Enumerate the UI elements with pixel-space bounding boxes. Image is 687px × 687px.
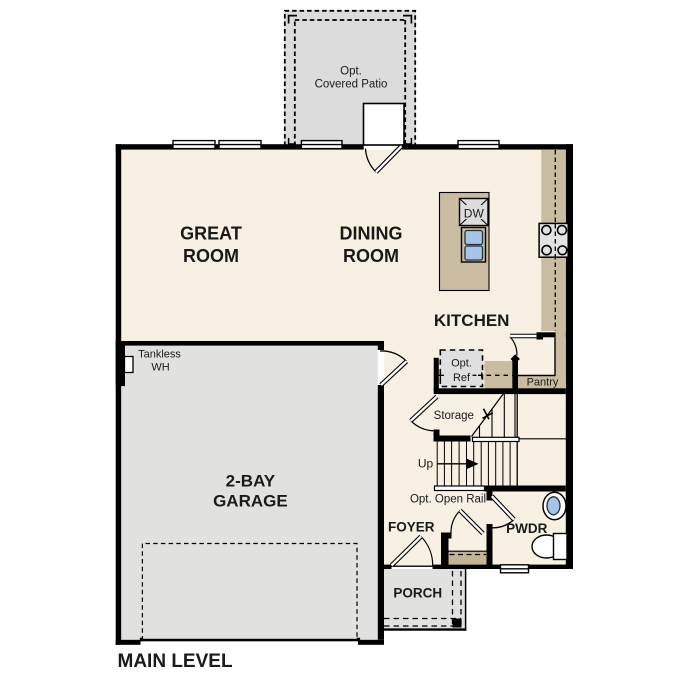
svg-text:ROOM: ROOM xyxy=(343,246,399,266)
svg-text:GREAT: GREAT xyxy=(180,224,242,244)
svg-text:DW: DW xyxy=(464,207,485,221)
svg-text:FOYER: FOYER xyxy=(388,519,435,534)
svg-text:MAIN LEVEL: MAIN LEVEL xyxy=(118,651,233,672)
svg-text:Ref: Ref xyxy=(453,372,471,384)
svg-text:Storage: Storage xyxy=(434,410,474,422)
svg-text:Covered Patio: Covered Patio xyxy=(315,79,388,91)
svg-text:WH: WH xyxy=(151,362,169,374)
svg-text:Up: Up xyxy=(418,457,434,471)
svg-text:ROOM: ROOM xyxy=(183,246,239,266)
svg-text:PORCH: PORCH xyxy=(393,585,442,600)
svg-text:Tankless: Tankless xyxy=(138,349,181,361)
svg-text:KITCHEN: KITCHEN xyxy=(434,311,510,330)
svg-text:Opt.: Opt. xyxy=(340,66,362,78)
svg-text:Opt. Open Rail: Opt. Open Rail xyxy=(410,494,486,506)
svg-text:Opt.: Opt. xyxy=(451,358,472,370)
svg-text:Pantry: Pantry xyxy=(527,377,559,389)
svg-text:2-BAY: 2-BAY xyxy=(226,472,276,491)
svg-text:PWDR: PWDR xyxy=(506,521,547,536)
svg-text:GARAGE: GARAGE xyxy=(213,492,288,511)
svg-text:DINING: DINING xyxy=(340,224,403,244)
